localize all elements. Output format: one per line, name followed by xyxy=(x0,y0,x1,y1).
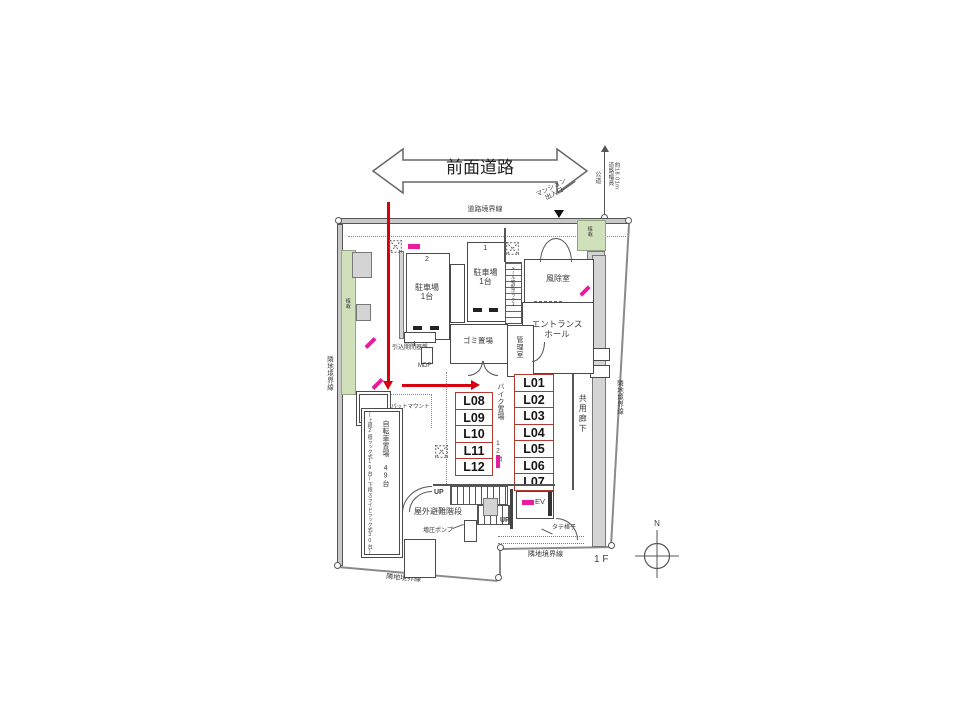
camera-marker-icon xyxy=(408,244,420,249)
public-road-label: 公道 xyxy=(593,171,600,184)
dotted-line xyxy=(446,372,447,484)
stair-up-label: UP xyxy=(500,517,510,525)
outdoor-stair-label: 屋外避難階段 xyxy=(414,507,462,516)
wheel-stop xyxy=(489,308,498,312)
stair-treads xyxy=(450,486,508,505)
door-dash-line xyxy=(534,301,562,302)
unit-cell: L07 xyxy=(514,473,554,491)
route-arrow-horizontal xyxy=(402,384,472,387)
unit-cell: L05 xyxy=(514,440,554,458)
parking-1-label: 駐車場 1台 xyxy=(467,268,504,286)
unit-cell: L01 xyxy=(514,374,554,392)
boundary-node xyxy=(625,217,632,224)
unit-column-right: L01 L02 L03 L04 L05 L06 L07 xyxy=(514,374,554,491)
planting-left-label: 植栽 xyxy=(344,298,350,309)
wall-segment xyxy=(510,489,513,529)
pump-label: 増圧ポンプ xyxy=(423,528,453,535)
site-plan-canvas: 前面道路 マンション 出入口 公道 道路幅員 約18.01m 道路境界線 隣地境… xyxy=(0,0,960,720)
boundary-node xyxy=(495,574,502,581)
leader-line xyxy=(452,524,464,529)
boundary-node xyxy=(334,562,341,569)
road-width-label: 道路幅員 約18.01m xyxy=(607,162,620,189)
stair-up-label: UP xyxy=(434,489,444,497)
gate-arc xyxy=(556,518,578,540)
unit-cell: L12 xyxy=(455,458,493,476)
lower-room xyxy=(404,539,436,578)
leader-line xyxy=(541,529,552,535)
pump-box xyxy=(464,520,477,542)
elevator-label: EV xyxy=(535,498,545,507)
route-arrowhead-right-icon xyxy=(471,380,480,390)
unit-cell: L04 xyxy=(514,424,554,442)
parking-2-number: 2 xyxy=(406,256,448,264)
door-arc xyxy=(556,238,572,262)
door-arc xyxy=(468,361,483,376)
door-arc xyxy=(540,238,556,262)
road-boundary-label: 道路境界線 xyxy=(445,206,525,214)
unit-cell: L09 xyxy=(455,409,493,427)
fence-bar xyxy=(399,251,404,339)
north-arrowhead-icon xyxy=(601,145,609,152)
manager-label: 管理室 xyxy=(515,336,523,359)
wheel-stop xyxy=(430,326,439,330)
bicycle-parking-label: 自転車置場 49台 xyxy=(381,420,389,488)
catch-basin-icon xyxy=(506,242,519,255)
unit-cell: L10 xyxy=(455,425,493,443)
garbage-label: ゴミ置場 xyxy=(450,337,506,346)
compass-north-label: N xyxy=(654,519,660,528)
leader-line xyxy=(414,341,415,346)
camera-marker-icon xyxy=(371,378,383,390)
boundary-right-label: 隣地境界線 xyxy=(615,380,622,415)
wall-segment xyxy=(548,492,552,516)
stair-landing xyxy=(483,498,498,516)
wheel-stop xyxy=(413,326,422,330)
bike-parking-label: バイク置場 xyxy=(496,383,504,421)
unit-cell: L08 xyxy=(455,392,493,410)
camera-marker-icon xyxy=(522,500,534,505)
boundary-bottom-right-label: 隣地境界線 xyxy=(528,551,563,559)
boundary-node xyxy=(608,542,615,549)
unit-cell: L11 xyxy=(455,442,493,460)
route-arrowhead-down-icon xyxy=(383,381,393,390)
camera-marker-icon xyxy=(364,337,376,349)
mdf-label: MDF xyxy=(418,363,431,370)
unit-cell: L03 xyxy=(514,407,554,425)
route-arrow-vertical xyxy=(387,202,390,382)
boundary-node xyxy=(335,217,342,224)
parking-2-label: 駐車場 1台 xyxy=(406,283,448,301)
exterior-wall-band xyxy=(592,255,606,547)
mdf-box xyxy=(421,347,433,364)
camera-marker-icon xyxy=(496,455,500,468)
wheel-stop xyxy=(473,308,482,312)
corridor-wall-line xyxy=(572,372,574,490)
floor-label: 1 F xyxy=(594,554,608,566)
switch-panel-box xyxy=(404,332,436,343)
front-road-label: 前面道路 xyxy=(370,158,590,178)
bicycle-parking-note: (上段2段ラック式19台/下段スライドラック式30台) xyxy=(366,412,372,555)
planting-right-label: 植栽 xyxy=(586,226,592,237)
boundary-left-label: 隣地境界線 xyxy=(325,356,332,391)
dotted-line xyxy=(431,394,432,428)
boundary-node xyxy=(497,544,504,551)
unit-cell: L02 xyxy=(514,391,554,409)
wall-box xyxy=(356,304,371,321)
door-arc xyxy=(483,361,498,376)
windbreak-label: 風除室 xyxy=(524,274,592,283)
parking-1-number: 1 xyxy=(467,245,504,253)
corridor-label: 共用廊下 xyxy=(578,394,587,434)
road-width-line xyxy=(604,152,605,215)
catch-basin-icon xyxy=(435,445,448,458)
entrance-marker-icon xyxy=(554,210,564,218)
mail-box-label: メール宅配ボックス xyxy=(511,266,516,307)
unit-column-left: L08 L09 L10 L11 L12 xyxy=(455,392,493,476)
wall-box xyxy=(352,252,372,278)
catch-basin-icon xyxy=(389,240,402,253)
compass-icon: N xyxy=(632,516,682,580)
unit-cell: L06 xyxy=(514,457,554,475)
wall-divider xyxy=(450,264,465,323)
